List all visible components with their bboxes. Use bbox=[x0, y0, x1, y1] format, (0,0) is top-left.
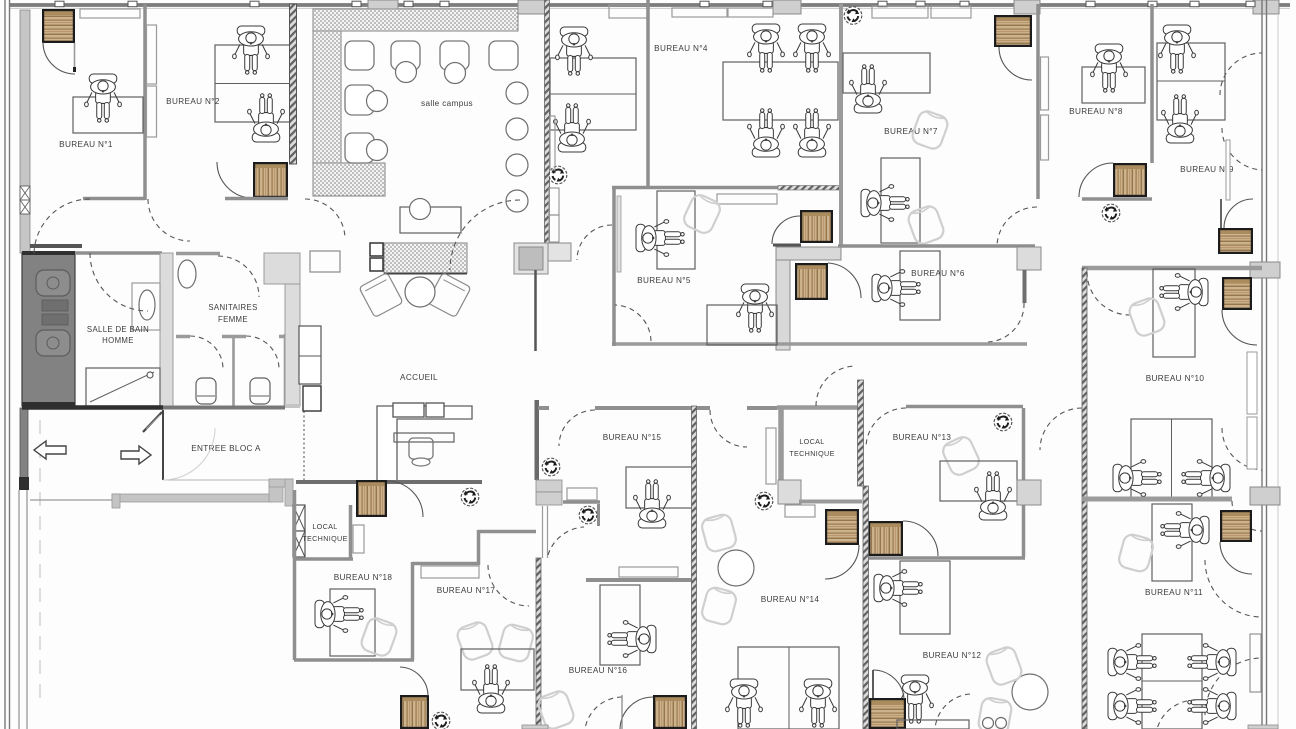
svg-text:SANITAIRES: SANITAIRES bbox=[208, 303, 257, 312]
svg-text:BUREAU N°11: BUREAU N°11 bbox=[1145, 588, 1203, 597]
svg-text:TECHNIQUE: TECHNIQUE bbox=[789, 449, 834, 458]
svg-text:SALLE DE BAIN: SALLE DE BAIN bbox=[87, 325, 149, 334]
svg-text:LOCAL: LOCAL bbox=[799, 437, 824, 446]
svg-text:HOMME: HOMME bbox=[102, 336, 134, 345]
svg-text:BUREAU N°17: BUREAU N°17 bbox=[437, 586, 496, 595]
svg-text:BUREAU N°4: BUREAU N°4 bbox=[654, 44, 708, 53]
svg-text:BUREAU N°13: BUREAU N°13 bbox=[893, 433, 952, 442]
svg-text:salle campus: salle campus bbox=[421, 99, 473, 108]
svg-text:TECHNIQUE: TECHNIQUE bbox=[302, 534, 347, 543]
svg-text:BUREAU N°8: BUREAU N°8 bbox=[1069, 107, 1123, 116]
svg-text:BUREAU N°16: BUREAU N°16 bbox=[569, 666, 628, 675]
svg-text:BUREAU N°6: BUREAU N°6 bbox=[911, 269, 965, 278]
svg-text:FEMME: FEMME bbox=[218, 315, 248, 324]
svg-text:LOCAL: LOCAL bbox=[312, 522, 337, 531]
svg-text:BUREAU N°5: BUREAU N°5 bbox=[637, 276, 691, 285]
svg-text:BUREAU N°12: BUREAU N°12 bbox=[923, 651, 982, 660]
svg-text:BUREAU N°2: BUREAU N°2 bbox=[166, 97, 220, 106]
svg-text:BUREAU N°10: BUREAU N°10 bbox=[1146, 374, 1205, 383]
svg-text:BUREAU N°18: BUREAU N°18 bbox=[334, 573, 393, 582]
svg-text:BUREAU N°14: BUREAU N°14 bbox=[761, 595, 820, 604]
svg-text:BUREAU N°1: BUREAU N°1 bbox=[59, 140, 113, 149]
svg-text:ENTREE BLOC A: ENTREE BLOC A bbox=[191, 444, 261, 453]
svg-text:ACCUEIL: ACCUEIL bbox=[400, 373, 438, 382]
svg-text:BUREAU N°7: BUREAU N°7 bbox=[884, 127, 938, 136]
svg-text:BUREAU N°15: BUREAU N°15 bbox=[603, 433, 662, 442]
